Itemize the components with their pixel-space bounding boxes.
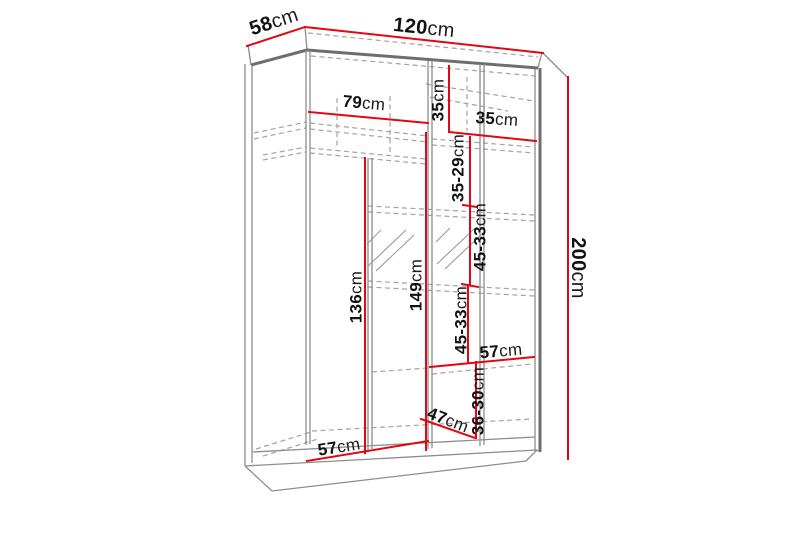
dim-height-200: 200cm	[568, 237, 588, 299]
dimension-lines	[247, 27, 568, 461]
wardrobe-dimension-diagram: 58cm 120cm 200cm 79cm 35cm 35cm 35-29cm …	[0, 0, 800, 533]
dim-height-136: 136cm	[348, 271, 365, 324]
hidden-edges	[254, 33, 538, 456]
dim-range-35-29: 35-29cm	[450, 134, 467, 202]
dim-range-45-33-lower: 45-33cm	[453, 286, 470, 354]
dim-shelf-depth-57: 57cm	[479, 341, 523, 362]
dim-height-149: 149cm	[408, 259, 425, 312]
dim-inner-width-79: 79cm	[342, 93, 386, 114]
hanging-rail	[263, 147, 426, 164]
dim-top-shelf-height-35: 35cm	[430, 79, 447, 122]
dim-right-width-35: 35cm	[475, 109, 519, 129]
base-plinth	[245, 437, 540, 491]
dim-range-36-30: 36-30cm	[470, 367, 487, 435]
wardrobe-line-drawing	[0, 0, 800, 533]
dim-range-45-33-upper: 45-33cm	[472, 203, 489, 271]
